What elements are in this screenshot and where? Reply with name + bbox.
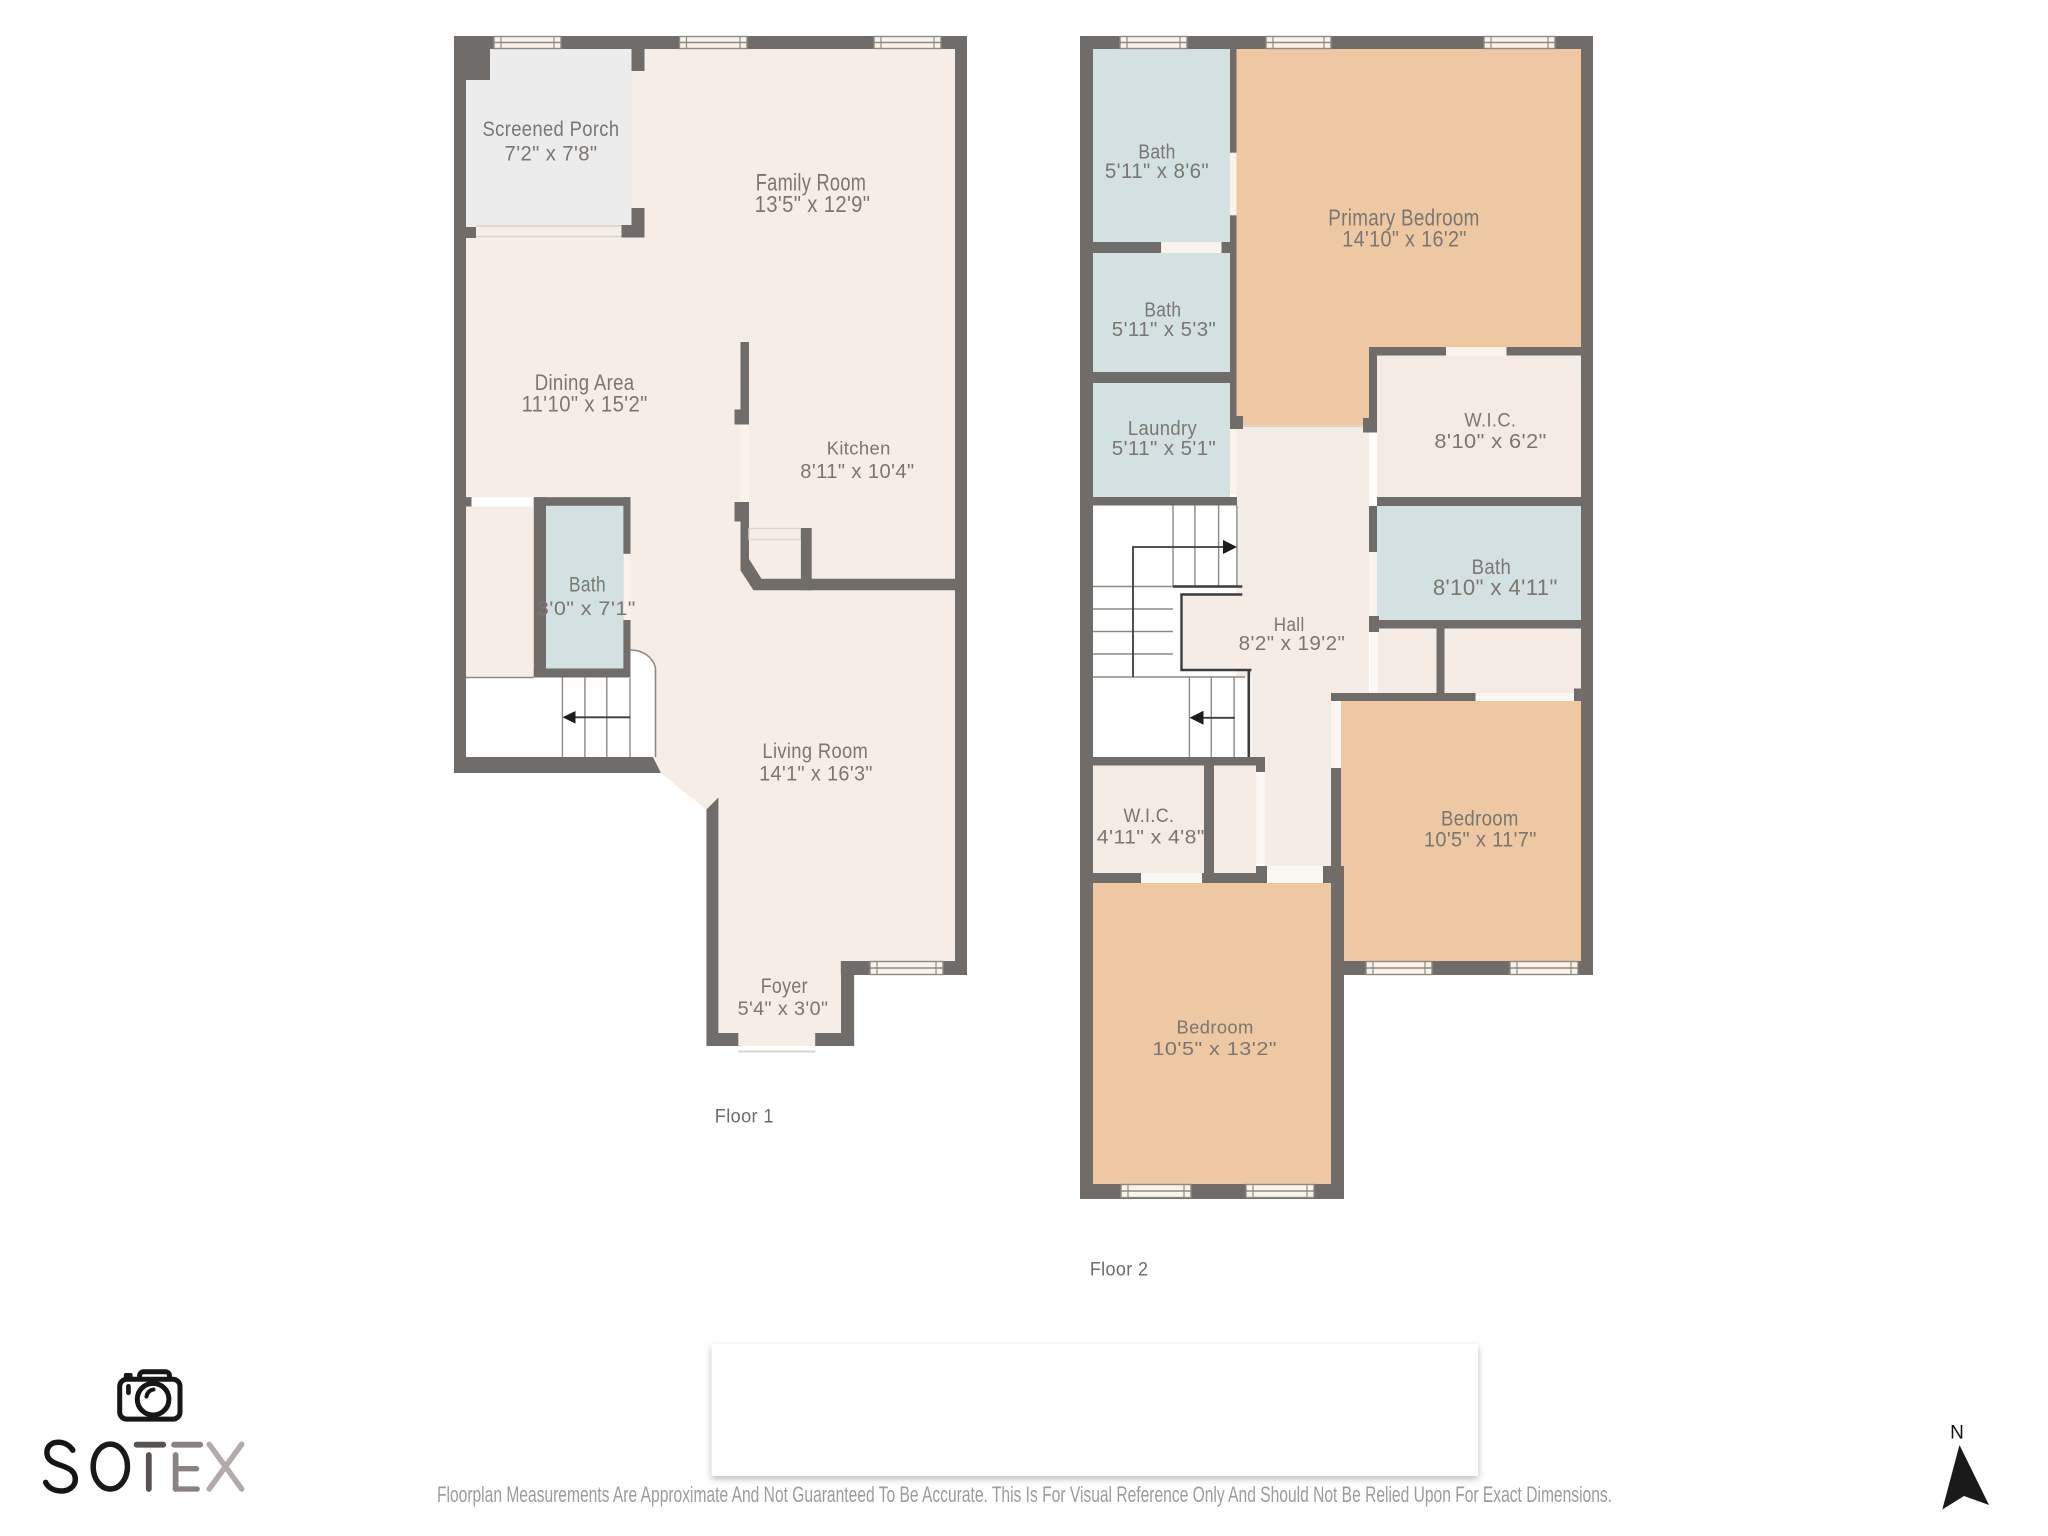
svg-text:Foyer: Foyer bbox=[761, 975, 808, 998]
svg-text:Laundry: Laundry bbox=[1128, 417, 1197, 440]
svg-text:Screened Porch: Screened Porch bbox=[483, 118, 620, 141]
svg-text:8'10" x 6'2": 8'10" x 6'2" bbox=[1434, 430, 1546, 453]
svg-text:10'5" x 13'2": 10'5" x 13'2" bbox=[1152, 1039, 1277, 1059]
svg-text:W.I.C.: W.I.C. bbox=[1123, 806, 1174, 827]
svg-text:10'5" x 11'7": 10'5" x 11'7" bbox=[1424, 827, 1537, 851]
svg-text:5'11" x 5'3": 5'11" x 5'3" bbox=[1112, 319, 1217, 341]
svg-text:Bath: Bath bbox=[569, 574, 606, 597]
svg-text:5'4" x 3'0": 5'4" x 3'0" bbox=[738, 998, 829, 1020]
svg-text:Kitchen: Kitchen bbox=[827, 437, 891, 458]
svg-text:4'11" x 4'8": 4'11" x 4'8" bbox=[1097, 828, 1205, 849]
svg-text:5'11" x 8'6": 5'11" x 8'6" bbox=[1105, 160, 1209, 183]
svg-text:Living Room: Living Room bbox=[762, 739, 868, 763]
svg-text:5'11" x 5'1": 5'11" x 5'1" bbox=[1112, 438, 1217, 460]
svg-text:8'10" x 4'11": 8'10" x 4'11" bbox=[1433, 575, 1558, 600]
svg-text:W.I.C.: W.I.C. bbox=[1464, 411, 1516, 432]
svg-text:3'0" x 7'1": 3'0" x 7'1" bbox=[537, 598, 636, 620]
svg-text:13'5" x 12'9": 13'5" x 12'9" bbox=[755, 191, 871, 217]
svg-text:11'10" x 15'2": 11'10" x 15'2" bbox=[522, 392, 648, 417]
svg-text:Floor 1: Floor 1 bbox=[715, 1106, 774, 1127]
svg-text:Bedroom: Bedroom bbox=[1177, 1018, 1254, 1038]
svg-text:Floor 2: Floor 2 bbox=[1090, 1260, 1149, 1281]
svg-text:Floorplan Measurements Are App: Floorplan Measurements Are Approximate A… bbox=[437, 1482, 1612, 1507]
svg-text:14'10" x 16'2": 14'10" x 16'2" bbox=[1342, 226, 1467, 251]
svg-text:8'11" x 10'4": 8'11" x 10'4" bbox=[800, 461, 914, 483]
svg-text:7'2" x 7'8": 7'2" x 7'8" bbox=[505, 143, 598, 166]
svg-text:N: N bbox=[1950, 1423, 1964, 1444]
svg-text:8'2" x 19'2": 8'2" x 19'2" bbox=[1239, 633, 1346, 655]
svg-text:14'1" x 16'3": 14'1" x 16'3" bbox=[759, 762, 873, 785]
